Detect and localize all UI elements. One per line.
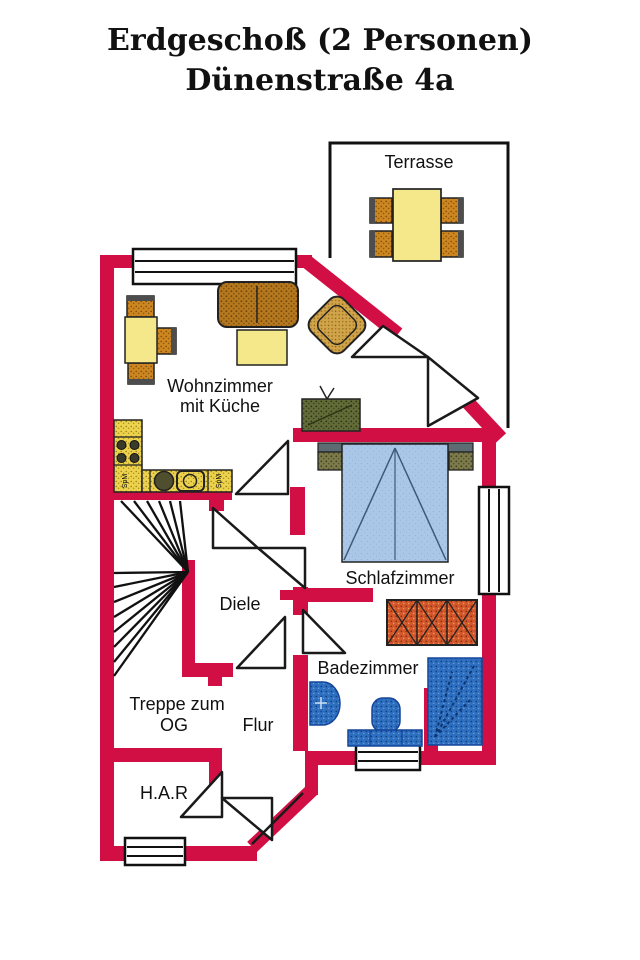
terrace-outline [330,143,508,428]
hallway-label: Diele [219,594,260,614]
window-bedroom [479,487,509,594]
stairs-label2: OG [160,715,188,735]
bedroom-label: Schlafzimmer [345,568,454,588]
washbasin [372,698,400,732]
dishwasher-label: SpM [216,474,223,489]
entrance-door-swing [222,798,272,840]
chair-back [370,198,375,223]
chair-back [458,231,463,257]
wall-bed-bath-divider [293,588,373,602]
washbasin-counter [348,730,422,746]
coffee-table [237,330,287,365]
terrace-label: Terrasse [384,152,453,172]
har-label: H.A.R [140,783,188,803]
wall-bedroom-left [290,487,305,535]
wall-stub [209,500,224,511]
page-title: Erdgeschoß (2 Personen) [107,23,533,58]
nightstand [318,452,342,470]
floor-plan: Erdgeschoß (2 Personen) Dünenstraße 4a T… [0,0,640,960]
wall-bath-left [293,655,308,751]
bedroom-door-swing [258,548,305,588]
livingroom-label2: mit Küche [180,396,260,416]
livingroom-door-swing [236,441,288,494]
page-subtitle: Dünenstraße 4a [185,63,454,98]
stairs-label: Treppe zum [129,694,224,714]
dishwasher-label: SpM [122,474,129,489]
terrace-door-swing [428,357,478,426]
dining-table [125,317,157,363]
terrace-table [393,189,441,261]
bedroom-door-swing [213,508,258,548]
bedroom-furniture [318,443,473,562]
sofa [218,282,298,327]
livingroom-label: Wohnzimmer [167,376,273,396]
wall-right [482,428,496,765]
tv-antenna [320,386,327,399]
bathroom-door-swing [303,610,345,653]
chair-back [127,296,154,301]
bathroom-label: Badezimmer [317,658,418,678]
window-livingroom [133,249,296,284]
radiator [387,600,477,645]
window-har [125,838,185,865]
chair-back [370,231,375,257]
kitchen-counter: SpM SpM [114,420,232,492]
wall-stub [208,677,222,686]
staircase [114,501,188,676]
corridor-label: Flur [243,715,274,735]
chair-back [128,379,154,384]
chair-back [458,198,463,223]
floor-plan-page: Erdgeschoß (2 Personen) Dünenstraße 4a T… [0,0,640,960]
nightstand [449,452,473,470]
shower [428,658,482,745]
bathroom-door-swing [237,617,285,668]
chair-back [171,328,176,354]
terrace: Terrasse [330,143,508,428]
wall-stub [280,590,293,600]
wall-har-top [114,748,222,762]
wall-left [100,255,114,861]
tv-antenna [327,388,334,399]
